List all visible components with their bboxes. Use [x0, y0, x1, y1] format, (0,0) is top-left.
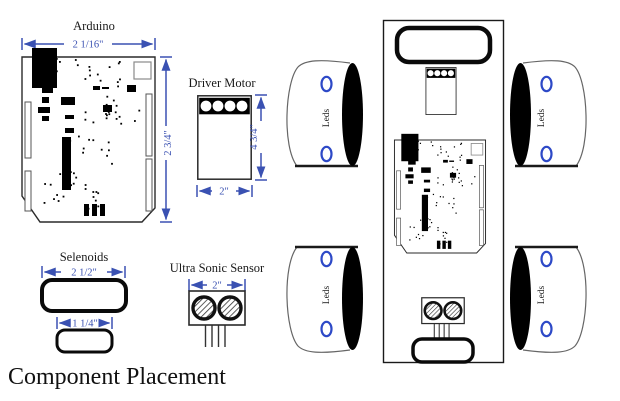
leds-label-rear-right: Leds: [537, 285, 547, 304]
chassis-assembly: [384, 21, 504, 363]
selenoid-large-width-value: 2 1/2": [71, 268, 97, 279]
arduino-width-value: 2 1/16": [73, 40, 104, 51]
chassis-driver-motor: [426, 67, 456, 114]
arduino-height-dimension: 2 3/4": [160, 57, 174, 222]
arduino-pcb-drawing: [22, 48, 155, 222]
selenoid-small-width-value: 1 1/4": [72, 319, 98, 330]
ultrasonic-detail: Ultra Sonic Sensor 2": [170, 261, 265, 347]
selenoid-large-dimension: 2 1/2": [42, 266, 125, 279]
ultrasonic-width-value: 2": [212, 281, 222, 292]
component-placement-diagram: Arduino 2 1/16" 2 3/4" Driver Motor 4 3/…: [0, 0, 620, 401]
arduino-height-value: 2 3/4": [163, 130, 174, 156]
chassis-arduino: [394, 134, 485, 253]
driver-motor-detail: Driver Motor 4 3/4" 2": [189, 76, 268, 198]
leds-label-front-left: Leds: [322, 108, 332, 127]
selenoid-small-dimension: 1 1/4": [57, 317, 112, 330]
selenoid-large-drawing: [42, 280, 126, 311]
chassis-selenoid-top: [397, 28, 490, 62]
selenoids-label: Selenoids: [60, 250, 109, 264]
driver-motor-label: Driver Motor: [189, 76, 257, 90]
wheel-front-right: [510, 61, 586, 166]
arduino-label: Arduino: [73, 19, 115, 33]
ultrasonic-label: Ultra Sonic Sensor: [170, 261, 265, 275]
leds-label-front-right: Leds: [537, 108, 547, 127]
leds-label-rear-left: Leds: [322, 285, 332, 304]
chassis-selenoid-bottom: [413, 339, 473, 362]
component-placement-page: Arduino 2 1/16" 2 3/4" Driver Motor 4 3/…: [0, 0, 620, 401]
driver-motor-height-value: 4 3/4": [249, 124, 260, 150]
driver-motor-width-dimension: 2": [197, 185, 252, 198]
selenoid-small-drawing: [57, 330, 112, 352]
selenoids-detail: Selenoids 2 1/2" 1 1/4": [42, 250, 126, 352]
ultrasonic-width-dimension: 2": [189, 279, 245, 292]
driver-motor-drawing: [198, 96, 251, 179]
driver-motor-width-value: 2": [219, 187, 229, 198]
page-title: Component Placement: [8, 364, 226, 390]
arduino-detail: Arduino 2 1/16" 2 3/4": [22, 19, 174, 222]
wheel-rear-right: [510, 247, 586, 352]
ultrasonic-drawing: [189, 291, 245, 347]
